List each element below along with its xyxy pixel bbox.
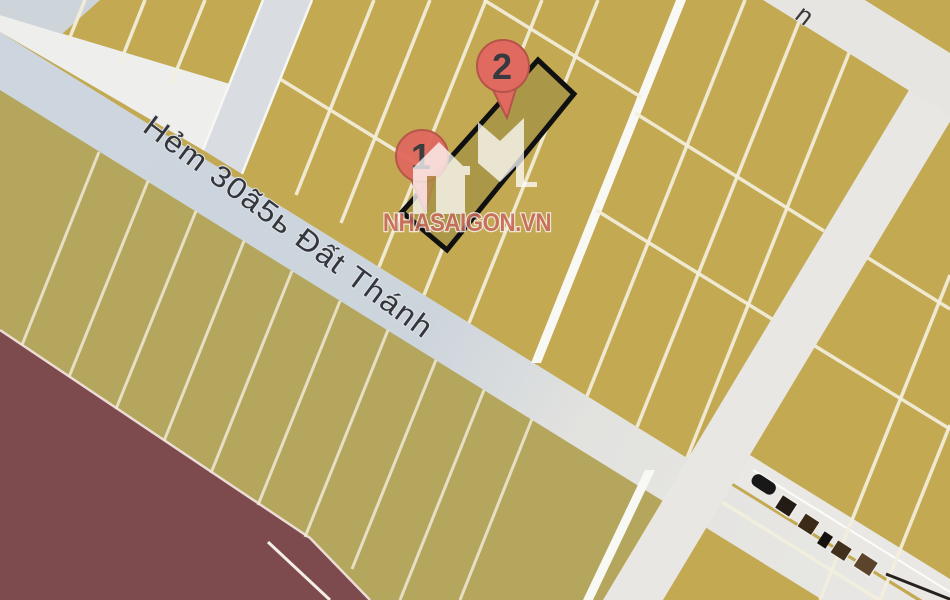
- watermark-text: NHASAIGON.VN: [383, 209, 551, 237]
- map-canvas[interactable]: Hẻm 30ã5ь Đất Thánh n 1 2: [0, 0, 950, 600]
- map-svg: Hẻm 30ã5ь Đất Thánh n 1 2: [0, 0, 950, 600]
- marker-2-number: 2: [492, 46, 512, 87]
